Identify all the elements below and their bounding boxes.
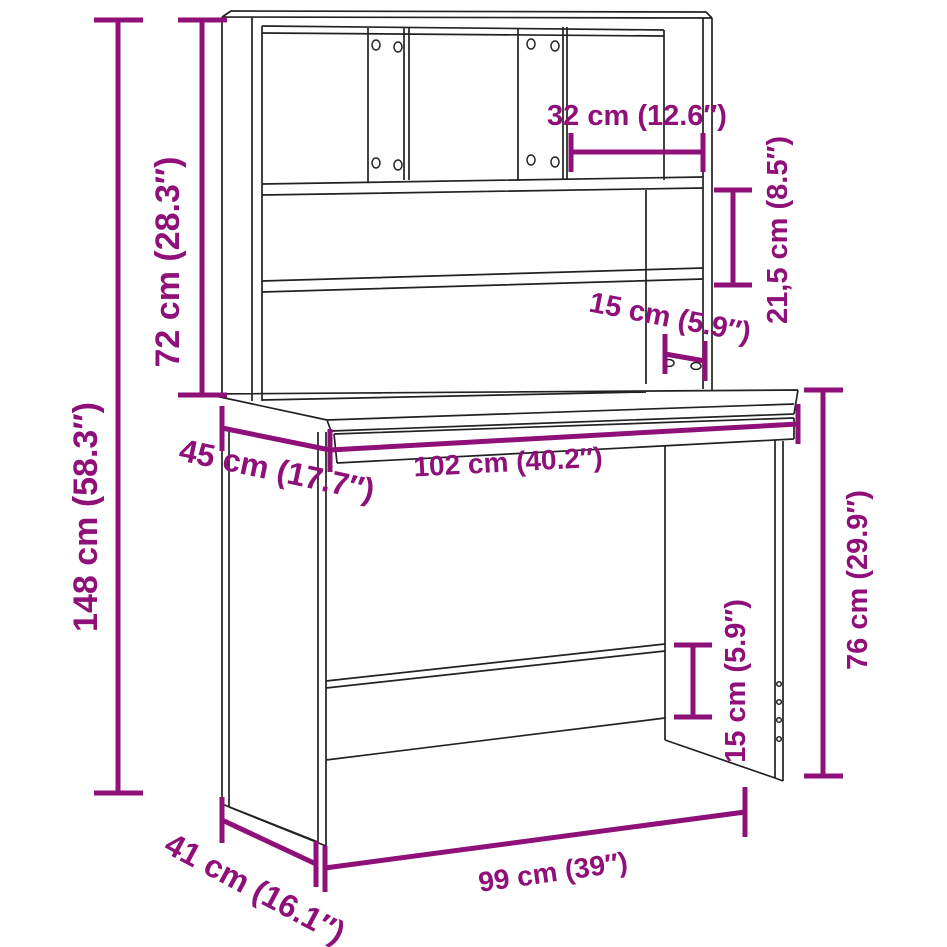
dimension-shelf-spacing: 21,5 cm (8.5″) <box>714 136 794 324</box>
dimension-hutch-depth-line <box>665 334 705 381</box>
dimension-desktop-depth: 45 cm (17.7″) <box>176 406 378 508</box>
dimension-base-width: 99 cm (39″) <box>325 787 745 898</box>
divider-screw-holes <box>372 39 559 170</box>
dimension-hutch-depth-label: 15 cm (5.9″) <box>587 287 754 350</box>
hutch-top-panel <box>222 11 712 36</box>
dimension-desktop-depth-label: 45 cm (17.7″) <box>176 432 378 508</box>
dimension-shelf-spacing-label: 21,5 cm (8.5″) <box>762 136 794 324</box>
dimension-base-width-label: 99 cm (39″) <box>476 846 629 898</box>
desk-back-panel <box>326 644 665 760</box>
hutch-left-side-panel <box>222 17 262 401</box>
dimension-shelf-spacing-line <box>714 190 752 285</box>
dimension-hutch-height: 72 cm (28.3″) <box>149 20 227 395</box>
dimension-diagram: 148 cm (58.3″) 72 cm (28.3″) 32 cm (12.6… <box>0 0 947 947</box>
dimension-desk-height: 76 cm (29.9″) <box>804 390 874 776</box>
dimension-desk-height-line <box>804 390 843 776</box>
dimension-back-panel-height-line <box>674 645 712 717</box>
dimension-total-height-label: 148 cm (58.3″) <box>67 402 105 632</box>
dimension-total-height: 148 cm (58.3″) <box>67 20 143 793</box>
dimension-annotations: 148 cm (58.3″) 72 cm (28.3″) 32 cm (12.6… <box>67 20 874 947</box>
dimension-desk-height-label: 76 cm (29.9″) <box>842 490 874 670</box>
dimension-hutch-height-label: 72 cm (28.3″) <box>149 157 187 368</box>
dimension-back-panel-height: 15 cm (5.9″) <box>674 599 752 763</box>
hutch-upper-shelf <box>262 177 703 195</box>
diagram-canvas: 148 cm (58.3″) 72 cm (28.3″) 32 cm (12.6… <box>0 0 947 947</box>
dimension-back-panel-height-label: 15 cm (5.9″) <box>720 599 752 763</box>
dimension-compartment-width-label: 32 cm (12.6″) <box>547 100 727 132</box>
dimension-base-depth: 41 cm (16.1″) <box>159 797 351 947</box>
dimension-compartment-width-line <box>571 133 703 172</box>
hutch-lower-shelf <box>262 268 703 292</box>
leg-cam-holes <box>777 682 782 742</box>
dimension-compartment-width: 32 cm (12.6″) <box>547 100 727 172</box>
dimension-desktop-width-label: 102 cm (40.2″) <box>413 442 604 483</box>
